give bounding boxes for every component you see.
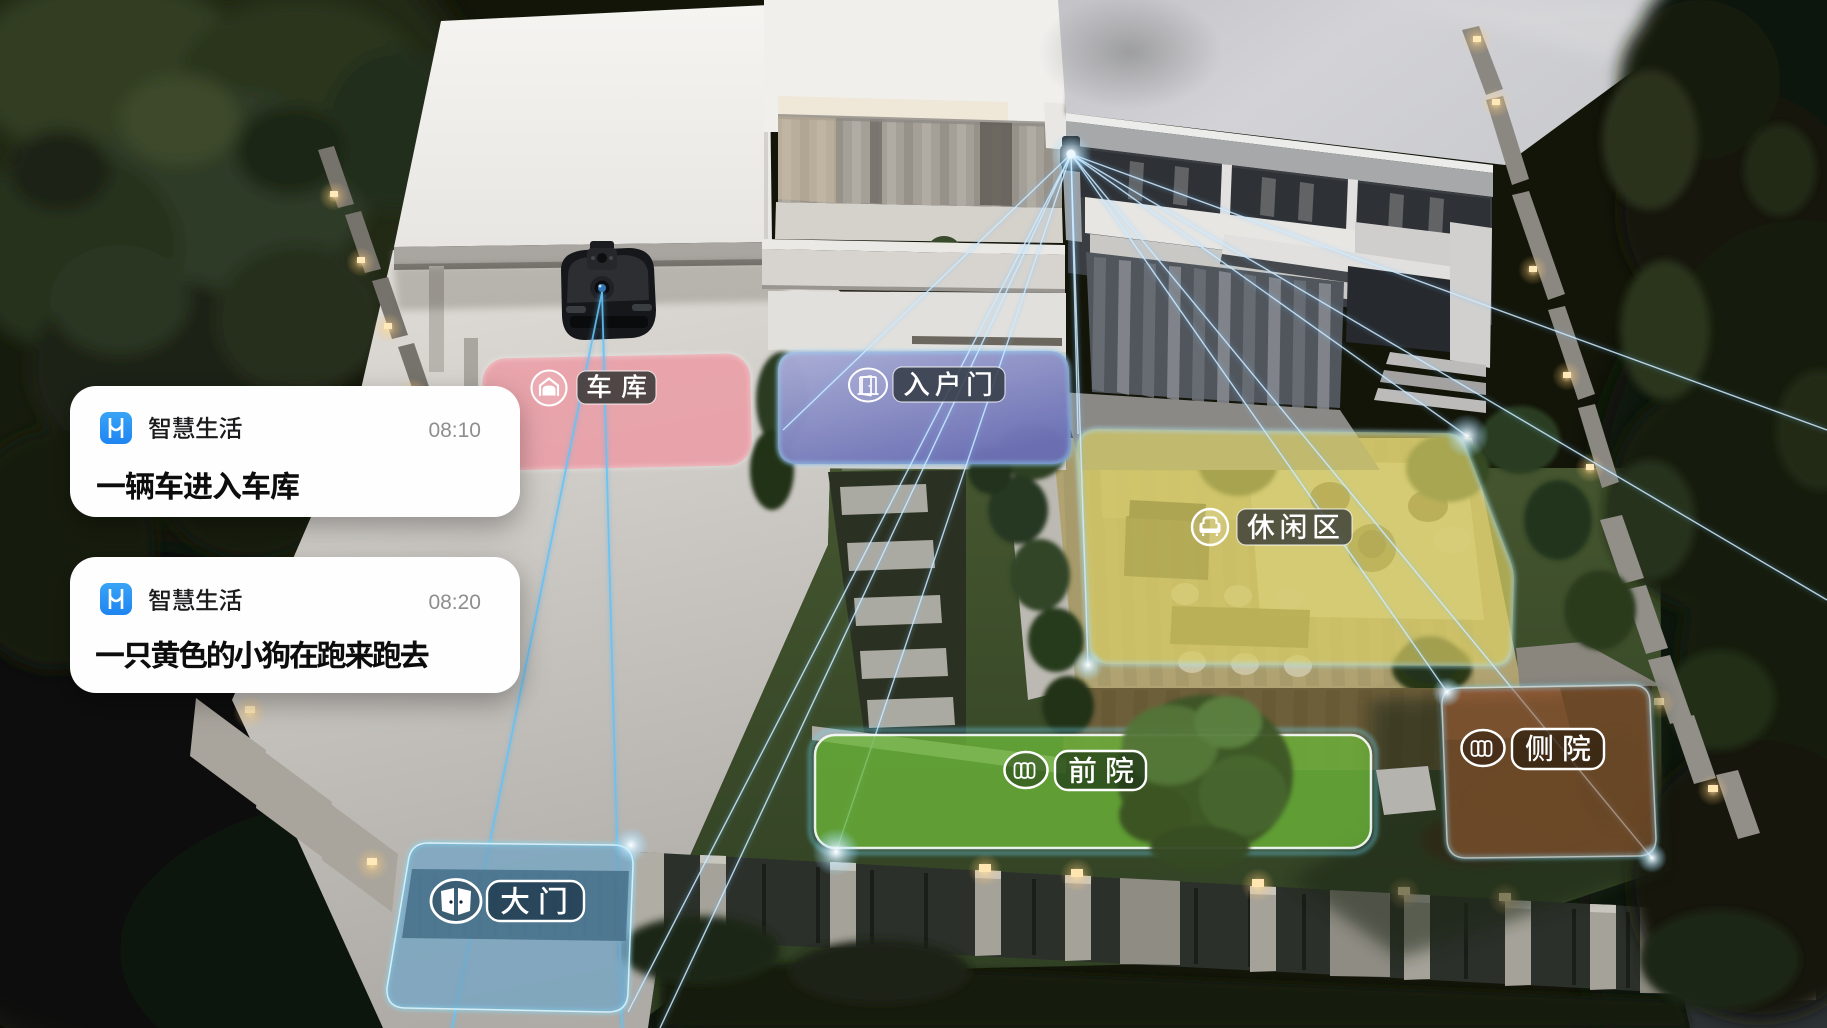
svg-text:08:20: 08:20: [428, 591, 481, 614]
svg-text:08:10: 08:10: [428, 419, 481, 442]
